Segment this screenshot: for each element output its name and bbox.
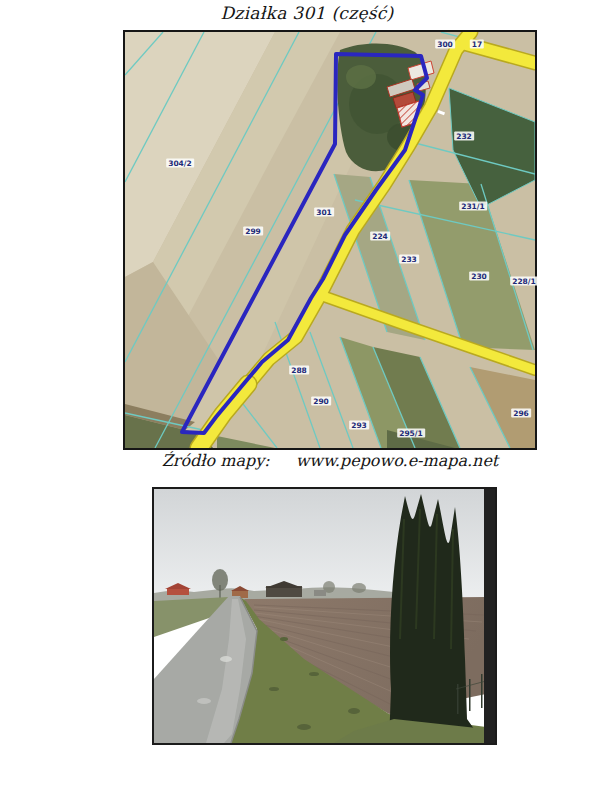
parcel-label-296: 296 (511, 409, 531, 418)
parcel-label-293: 293 (349, 421, 369, 430)
parcel-label-231-1: 231/1 (459, 202, 487, 211)
page-title: Działka 301 (część) (0, 3, 614, 23)
parcel-label-295-1: 295/1 (397, 429, 425, 438)
parcel-label-290: 290 (311, 397, 331, 406)
photo-edge-strip (484, 489, 495, 743)
parcel-label-228-1: 228/1 (510, 277, 538, 286)
parcel-label-233: 233 (399, 255, 419, 264)
parcel-label-17: 17 (470, 40, 484, 49)
parcel-label-301: 301 (314, 208, 334, 217)
parcel-label-224: 224 (370, 232, 390, 241)
parcel-label-299: 299 (243, 227, 263, 236)
parcel-label-304-2: 304/2 (166, 159, 194, 168)
cadastral-map-image: 304/229930130017232231/1224233230228/128… (123, 30, 537, 450)
site-photo-graphic (154, 489, 495, 743)
parcel-label-232: 232 (454, 132, 474, 141)
map-source-label: Źródło mapy: (162, 451, 270, 470)
parcel-number-labels: 304/229930130017232231/1224233230228/128… (125, 32, 535, 448)
document-page: { "title": "Działka 301 (część)", "map":… (0, 0, 614, 800)
parcel-label-230: 230 (469, 272, 489, 281)
parcel-label-288: 288 (289, 366, 309, 375)
site-photo-image (152, 487, 497, 745)
parcel-label-300: 300 (435, 40, 455, 49)
map-source-url: www.pepowo.e-mapa.net (296, 451, 499, 470)
map-source-caption: Źródło mapy:www.pepowo.e-mapa.net (123, 451, 537, 470)
